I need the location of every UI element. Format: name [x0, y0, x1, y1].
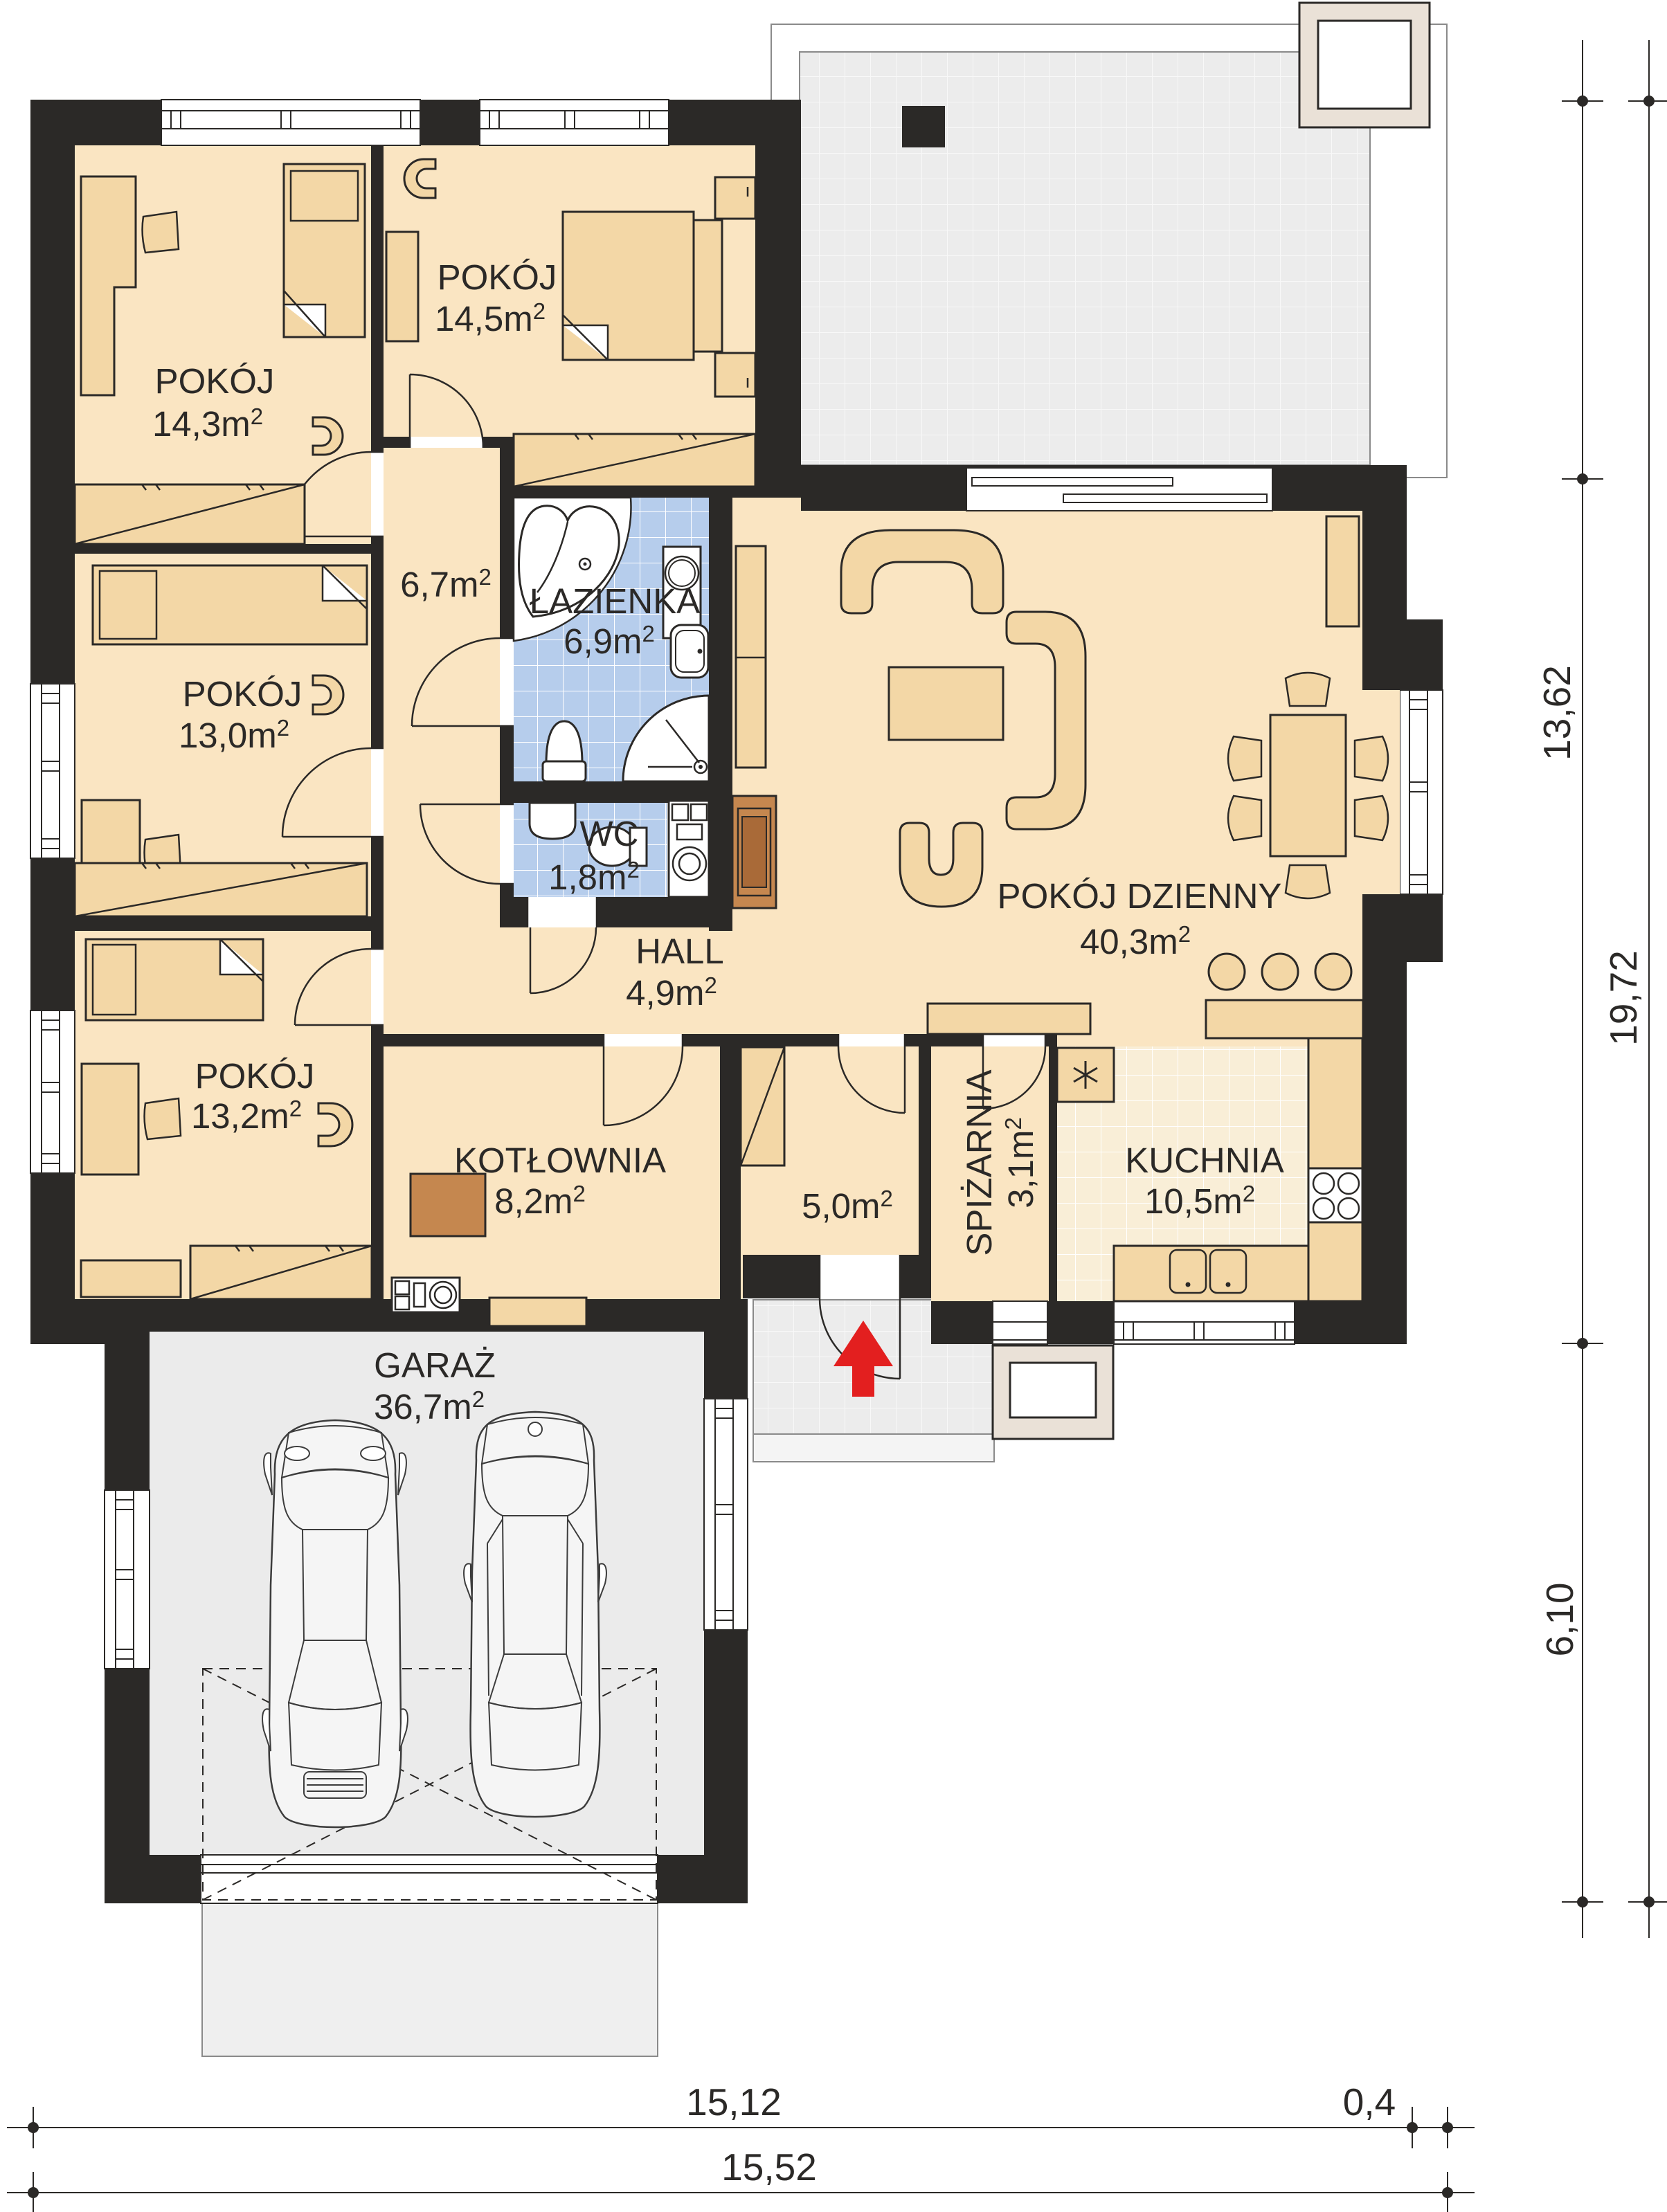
- svg-text:GARAŻ: GARAŻ: [374, 1345, 496, 1385]
- svg-text:3,1m2: 3,1m2: [1000, 1117, 1040, 1208]
- svg-text:POKÓJ: POKÓJ: [183, 674, 303, 714]
- svg-text:36,7m2: 36,7m2: [374, 1386, 485, 1426]
- svg-text:6,9m2: 6,9m2: [564, 621, 655, 661]
- svg-text:POKÓJ: POKÓJ: [438, 257, 557, 297]
- svg-text:15,12: 15,12: [686, 2080, 782, 2123]
- svg-text:HALL: HALL: [636, 932, 724, 971]
- svg-text:POKÓJ: POKÓJ: [195, 1056, 315, 1096]
- svg-text:SPIŻARNIA: SPIŻARNIA: [959, 1069, 999, 1255]
- svg-text:40,3m2: 40,3m2: [1080, 921, 1191, 961]
- svg-text:15,52: 15,52: [721, 2146, 817, 2188]
- svg-text:14,5m2: 14,5m2: [435, 298, 546, 338]
- svg-text:19,72: 19,72: [1602, 950, 1645, 1046]
- svg-text:5,0m2: 5,0m2: [802, 1186, 893, 1226]
- svg-text:KOTŁOWNIA: KOTŁOWNIA: [454, 1141, 666, 1180]
- svg-text:1,8m2: 1,8m2: [548, 857, 640, 897]
- svg-text:13,0m2: 13,0m2: [179, 715, 289, 755]
- svg-text:6,7m2: 6,7m2: [400, 564, 492, 604]
- svg-text:4,9m2: 4,9m2: [626, 972, 717, 1013]
- svg-text:POKÓJ: POKÓJ: [155, 361, 275, 401]
- svg-text:ŁAZIENKA: ŁAZIENKA: [530, 581, 701, 621]
- svg-text:10,5m2: 10,5m2: [1144, 1181, 1255, 1221]
- svg-text:KUCHNIA: KUCHNIA: [1125, 1141, 1284, 1180]
- svg-text:13,2m2: 13,2m2: [191, 1096, 302, 1136]
- svg-text:8,2m2: 8,2m2: [494, 1181, 586, 1221]
- svg-text:14,3m2: 14,3m2: [152, 404, 263, 444]
- svg-text:0,4: 0,4: [1343, 2080, 1396, 2123]
- svg-text:WC: WC: [580, 814, 639, 853]
- svg-text:6,10: 6,10: [1538, 1582, 1581, 1656]
- svg-text:13,62: 13,62: [1535, 665, 1578, 761]
- svg-text:POKÓJ DZIENNY: POKÓJ DZIENNY: [998, 876, 1282, 916]
